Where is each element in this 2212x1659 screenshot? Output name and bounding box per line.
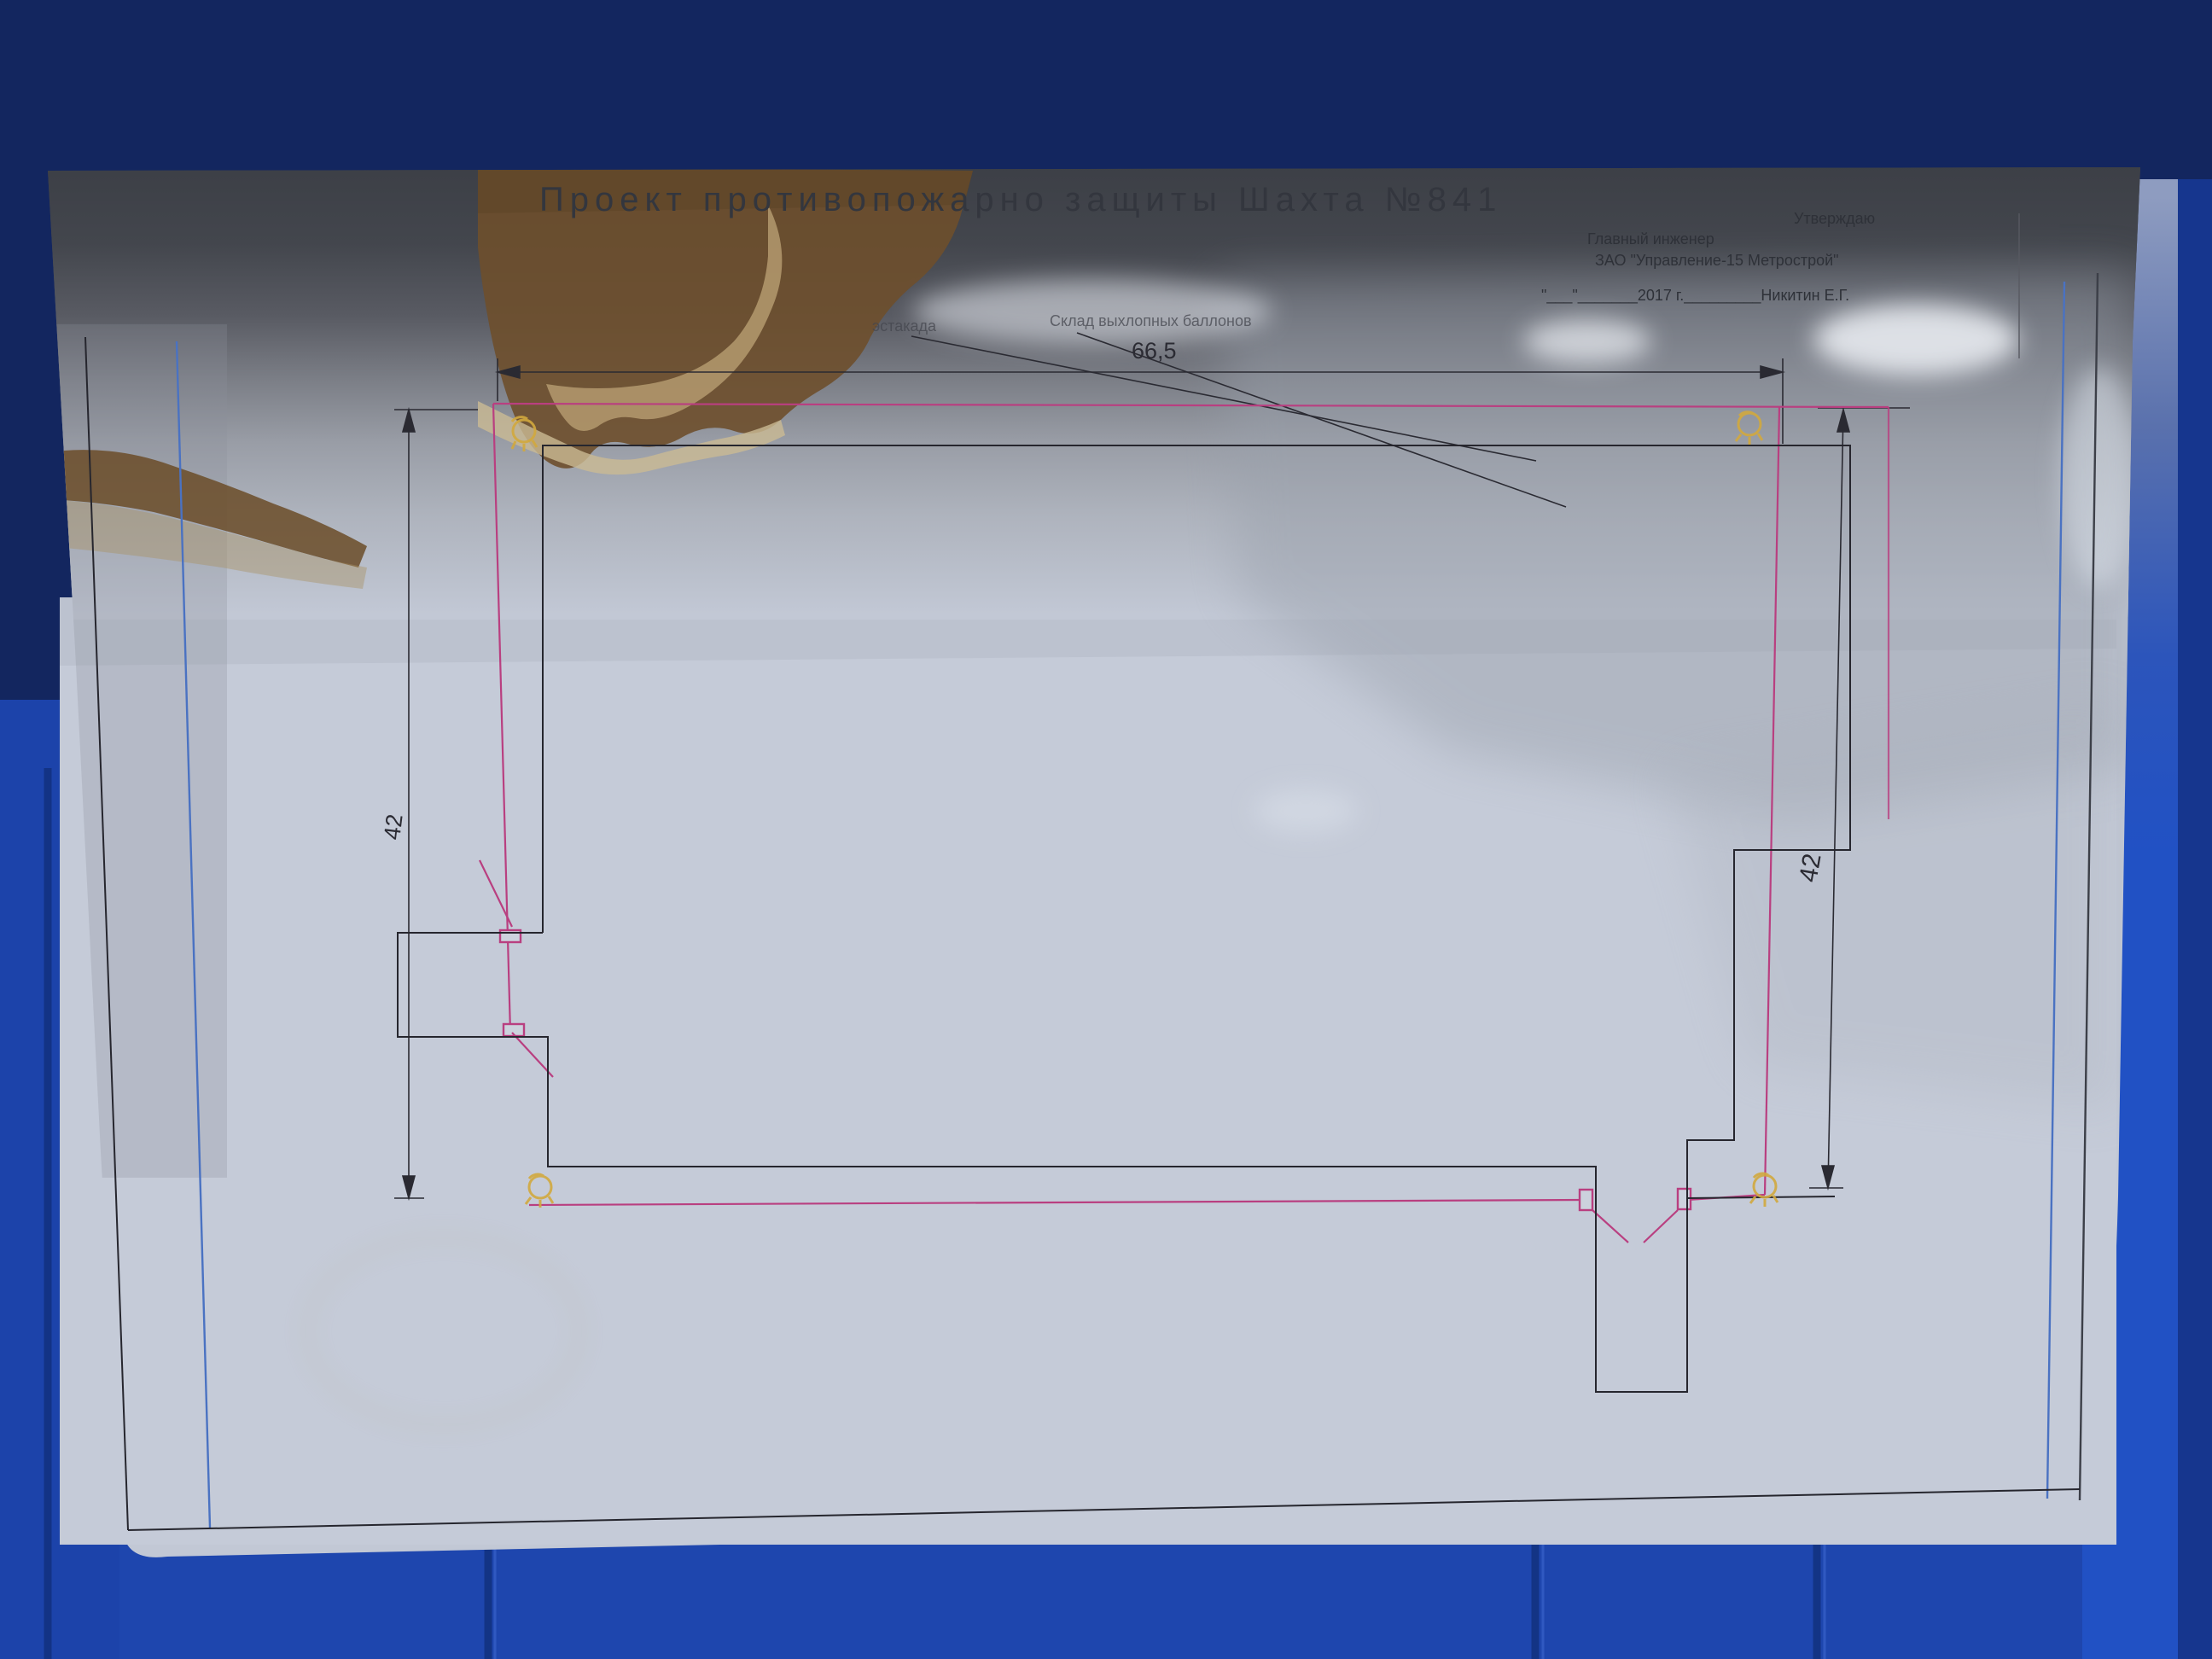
svg-text:Утверждаю: Утверждаю — [1794, 210, 1875, 227]
svg-text:ЗАО "Управление-15 Метрострой": ЗАО "Управление-15 Метрострой" — [1595, 252, 1839, 269]
svg-text:Главный инженер: Главный инженер — [1587, 230, 1714, 247]
svg-text:"___"_______2017 г._________Ни: "___"_______2017 г._________Никитин Е.Г. — [1541, 287, 1849, 305]
svg-text:42: 42 — [379, 812, 407, 841]
svg-text:42: 42 — [1794, 852, 1826, 885]
svg-text:66,5: 66,5 — [1132, 338, 1177, 364]
svg-text:Проект противопожарно защиты: Проект противопожарно защиты Шахта №841 — [539, 181, 1502, 218]
svg-text:Склад выхлопных баллонов: Склад выхлопных баллонов — [1050, 312, 1252, 329]
svg-text:эстакада: эстакада — [872, 317, 937, 335]
